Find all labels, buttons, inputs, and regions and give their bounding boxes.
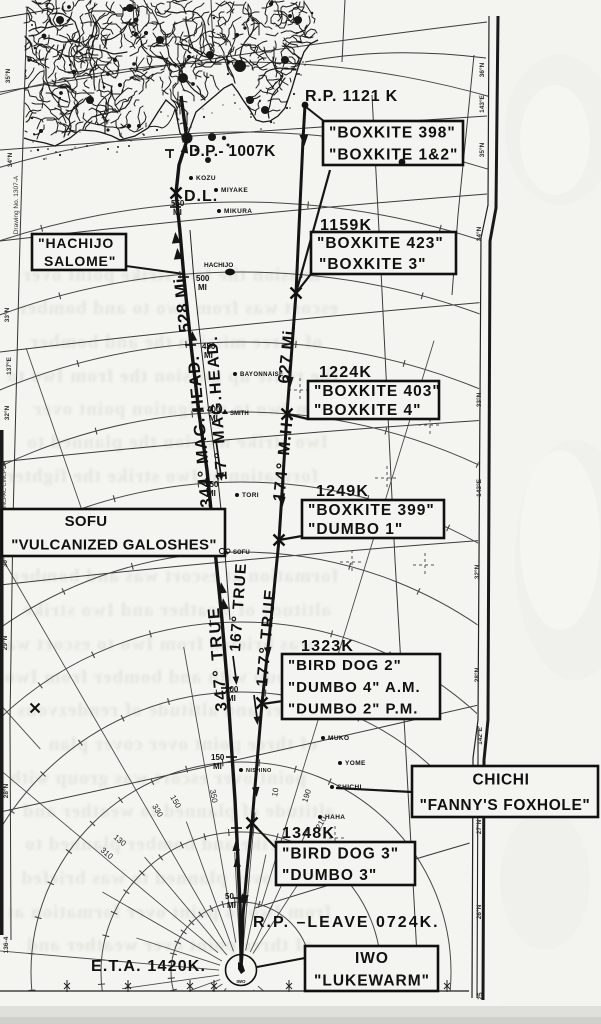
svg-text:"DUMBO 1": "DUMBO 1" — [308, 521, 403, 538]
svg-text:MI: MI — [213, 762, 222, 771]
svg-text:26°N: 26°N — [475, 904, 483, 919]
svg-text:IWO: IWO — [355, 950, 389, 967]
svg-text:500: 500 — [196, 274, 210, 283]
svg-text:HACHIJO: HACHIJO — [204, 262, 233, 269]
svg-text:"HACHIJO: "HACHIJO — [38, 235, 114, 251]
svg-text:143°E: 143°E — [475, 478, 483, 496]
svg-text:35°N: 35°N — [478, 142, 486, 157]
svg-text:1224K: 1224K — [319, 364, 372, 381]
svg-text:33°N: 33°N — [3, 307, 11, 322]
svg-text:34°N: 34°N — [475, 226, 483, 241]
svg-text:142°E: 142°E — [476, 726, 484, 744]
svg-text:"BOXKITE 4": "BOXKITE 4" — [314, 402, 422, 419]
svg-text:formation at Iwo strike the fi: formation at Iwo strike the fighters — [0, 466, 318, 487]
svg-text:MUKO: MUKO — [328, 735, 349, 742]
svg-text:"BIRD DOG 3": "BIRD DOG 3" — [282, 845, 399, 862]
svg-text:32°N: 32°N — [473, 564, 481, 579]
svg-text:"DUMBO 4" A.M.: "DUMBO 4" A.M. — [288, 679, 421, 696]
svg-text:R.P. –LEAVE 0724K.: R.P. –LEAVE 0724K. — [253, 914, 440, 931]
svg-text:1348K: 1348K — [282, 825, 335, 842]
svg-text:1249K: 1249K — [316, 483, 369, 500]
svg-text:"BOXKITE 399": "BOXKITE 399" — [308, 502, 435, 519]
svg-text:137°E: 137°E — [5, 356, 13, 374]
svg-text:"DUMBO 3": "DUMBO 3" — [282, 867, 377, 884]
svg-text:"DUMBO 2" P.M.: "DUMBO 2" P.M. — [288, 701, 418, 718]
svg-text:IWO: IWO — [237, 979, 246, 984]
svg-text:R.P. 1121 K: R.P. 1121 K — [305, 88, 398, 105]
svg-text:MIKURA: MIKURA — [224, 208, 252, 215]
svg-text:YOME: YOME — [345, 760, 366, 767]
svg-text:"BIRD DOG 2": "BIRD DOG 2" — [288, 657, 402, 674]
svg-text:"VULCANIZED GALOSHES": "VULCANIZED GALOSHES" — [11, 537, 217, 554]
svg-text:136-4: 136-4 — [3, 936, 10, 953]
svg-text:CHICHI: CHICHI — [337, 784, 362, 791]
svg-text:SOFU: SOFU — [233, 550, 250, 556]
svg-text:25: 25 — [477, 992, 484, 1000]
svg-text:27°N: 27°N — [475, 819, 483, 834]
svg-text:1323K: 1323K — [301, 638, 354, 655]
svg-text:1159K: 1159K — [320, 217, 372, 234]
svg-text:550: 550 — [171, 199, 185, 208]
svg-text:altitude of weather and Iwo st: altitude of weather and Iwo strike — [22, 600, 331, 621]
svg-text:143°E: 143°E — [478, 94, 486, 112]
svg-text:CHICHI: CHICHI — [473, 771, 530, 788]
svg-text:D.L.: D.L. — [184, 188, 218, 205]
svg-text:"BOXKITE 3": "BOXKITE 3" — [319, 256, 427, 273]
svg-text:33°N: 33°N — [475, 392, 483, 407]
svg-text:"LUKEWARM": "LUKEWARM" — [314, 972, 430, 989]
svg-text:32°N: 32°N — [3, 405, 11, 420]
svg-text:MI: MI — [173, 208, 182, 217]
svg-text:TORI: TORI — [242, 492, 259, 499]
svg-text:"BOXKITE 398": "BOXKITE 398" — [329, 125, 456, 142]
svg-text:"FANNY'S FOXHOLE": "FANNY'S FOXHOLE" — [420, 797, 591, 814]
svg-text:NISHINO: NISHINO — [246, 768, 272, 774]
svg-text:KOZU: KOZU — [196, 175, 216, 182]
svg-text:MIYAKE: MIYAKE — [221, 187, 248, 194]
svg-text:28°N: 28°N — [473, 667, 481, 682]
svg-text:"BOXKITE 403": "BOXKITE 403" — [314, 383, 441, 400]
svg-text:SALOME": SALOME" — [44, 253, 116, 269]
svg-text:SMITH: SMITH — [230, 411, 249, 417]
svg-text:Drawing No. 1307-A: Drawing No. 1307-A — [13, 175, 20, 234]
svg-text:"BOXKITE 1&2": "BOXKITE 1&2" — [329, 147, 458, 164]
svg-text:MI: MI — [198, 283, 207, 292]
svg-text:E.T.A. 1420K.: E.T.A. 1420K. — [91, 958, 206, 975]
svg-text:MI: MI — [227, 901, 236, 910]
svg-text:29°N: 29°N — [1, 635, 9, 650]
svg-text:50: 50 — [225, 892, 234, 901]
svg-text:SOFU: SOFU — [65, 513, 108, 530]
svg-text:formation at escort was and bo: formation at escort was and bomber — [10, 566, 338, 587]
svg-text:28°N: 28°N — [2, 783, 10, 798]
svg-text:150: 150 — [211, 753, 225, 762]
svg-text:of three point over weather an: of three point over weather and — [26, 935, 312, 956]
svg-text:D.P.- 1007K: D.P.- 1007K — [189, 143, 276, 160]
svg-text:36°N: 36°N — [478, 62, 486, 77]
svg-text:34°N: 34°N — [6, 152, 14, 167]
svg-text:"BOXKITE 423": "BOXKITE 423" — [317, 235, 444, 252]
svg-text:35°N: 35°N — [4, 68, 12, 83]
